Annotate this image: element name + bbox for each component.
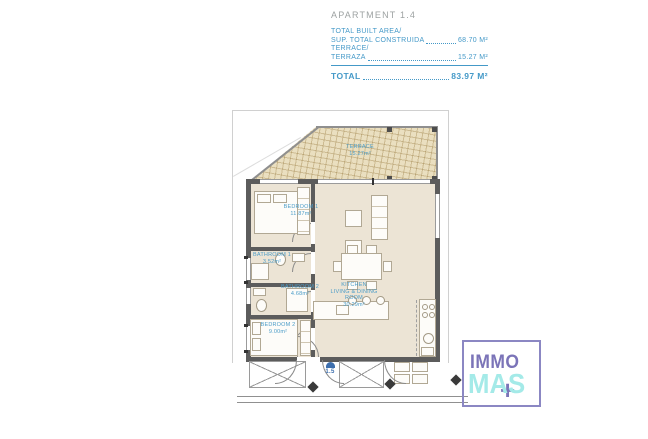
living-sliding-door (318, 179, 430, 184)
bed-2-pillow (252, 338, 261, 351)
room-area: 3.52m² (248, 259, 296, 266)
floor-plan-page: APARTMENT 1.4 TOTAL BUILT AREA/ SUP. TOT… (0, 0, 648, 439)
bed-1-pillow (273, 194, 287, 203)
total-value: 83.97 M² (451, 71, 488, 81)
hob-burner (422, 312, 428, 318)
bathroom2-label: BATHROOM 2 4.68m² (272, 284, 328, 297)
bedroom1-terrace-window (260, 179, 298, 184)
sliding-door-tick (372, 178, 374, 185)
room-name: BEDROOM 1 (280, 204, 322, 211)
kitchen-living-label: KITCHEN LIVING & DINING ROOM 30.29m² (321, 282, 387, 308)
entrance-marker: 1.5 (318, 362, 342, 376)
terrace-post (432, 127, 437, 132)
terrace-railing-top (316, 126, 437, 128)
stair-box (412, 374, 428, 384)
terrace-value: 15.27 M² (458, 54, 488, 63)
bedroom1-door-opening (311, 222, 315, 244)
column-marker (307, 381, 318, 392)
dining-chair (333, 261, 342, 272)
room-area: 9.00m² (253, 329, 303, 336)
terrace-label: TERRACE 15.27m² (340, 144, 380, 157)
bedroom1-label: BEDROOM 1 11.87m² (280, 204, 322, 217)
total-row: TOTAL 83.97 M² (331, 71, 488, 81)
entrance-number: 1.5 (318, 368, 342, 376)
total-label: TOTAL (331, 71, 361, 81)
dot-leader (368, 60, 456, 61)
dot-leader (426, 43, 456, 44)
apartment-title: APARTMENT 1.4 (331, 10, 488, 20)
sofa (371, 195, 388, 240)
room-area: 30.29m² (321, 302, 387, 309)
bathroom1-label: BATHROOM 1 3.52m² (248, 252, 296, 265)
bathroom1-door-opening (311, 252, 315, 274)
jamb-tick (244, 324, 248, 327)
wall-bed1-bath1 (251, 247, 311, 251)
toilet-2 (256, 299, 267, 312)
shower-1 (251, 263, 269, 280)
terrace-row: TERRAZA 15.27 M² (331, 54, 488, 63)
hob-burner (422, 304, 428, 310)
fridge (421, 347, 434, 356)
room-area: 11.87m² (280, 211, 322, 218)
left-window-2 (246, 288, 251, 304)
immomas-logo: + IMMO MAS (462, 340, 541, 407)
built-area-label-es: SUP. TOTAL CONSTRUIDA (331, 37, 424, 46)
terrace-label-en: TERRACE/ (331, 45, 488, 54)
dining-table (341, 253, 382, 280)
room-area: 4.68m² (272, 291, 328, 298)
upper-cabinet-line (416, 300, 418, 356)
terrace-area: 15.27m² (340, 151, 380, 158)
shaft-right (339, 361, 384, 388)
jamb-tick (244, 350, 248, 353)
built-area-value: 68.70 M² (458, 37, 488, 46)
bed-1-pillow (257, 194, 271, 203)
column-marker (450, 374, 461, 385)
hob-burner (429, 304, 435, 310)
living-right-window (435, 194, 440, 238)
terrace-label-es: TERRAZA (331, 54, 366, 63)
logo-mas-text: MAS (468, 368, 525, 400)
summary-divider (331, 65, 488, 66)
dining-chair (366, 245, 377, 254)
hob-burner (429, 312, 435, 318)
terrace-post (387, 127, 392, 132)
sink-2 (253, 288, 266, 296)
room-name: BATHROOM 1 (248, 252, 296, 259)
built-area-row: SUP. TOTAL CONSTRUIDA 68.70 M² (331, 37, 488, 46)
dining-chair (383, 261, 392, 272)
bedroom2-label: BEDROOM 2 9.00m² (253, 322, 303, 335)
corridor-line (237, 402, 468, 403)
room-subname: LIVING & DINING ROOM (321, 289, 387, 302)
jamb-tick (244, 281, 248, 284)
stair-box (412, 362, 428, 372)
kitchen-sink (423, 333, 434, 344)
dining-chair (347, 245, 358, 254)
summary-block: APARTMENT 1.4 TOTAL BUILT AREA/ SUP. TOT… (331, 10, 488, 81)
built-area-label-en: TOTAL BUILT AREA/ (331, 28, 488, 37)
area-table: TOTAL BUILT AREA/ SUP. TOTAL CONSTRUIDA … (331, 28, 488, 81)
corridor-line (237, 396, 468, 397)
terrace-railing-right (436, 126, 438, 182)
coffee-table (345, 210, 362, 227)
dot-leader (363, 79, 450, 80)
